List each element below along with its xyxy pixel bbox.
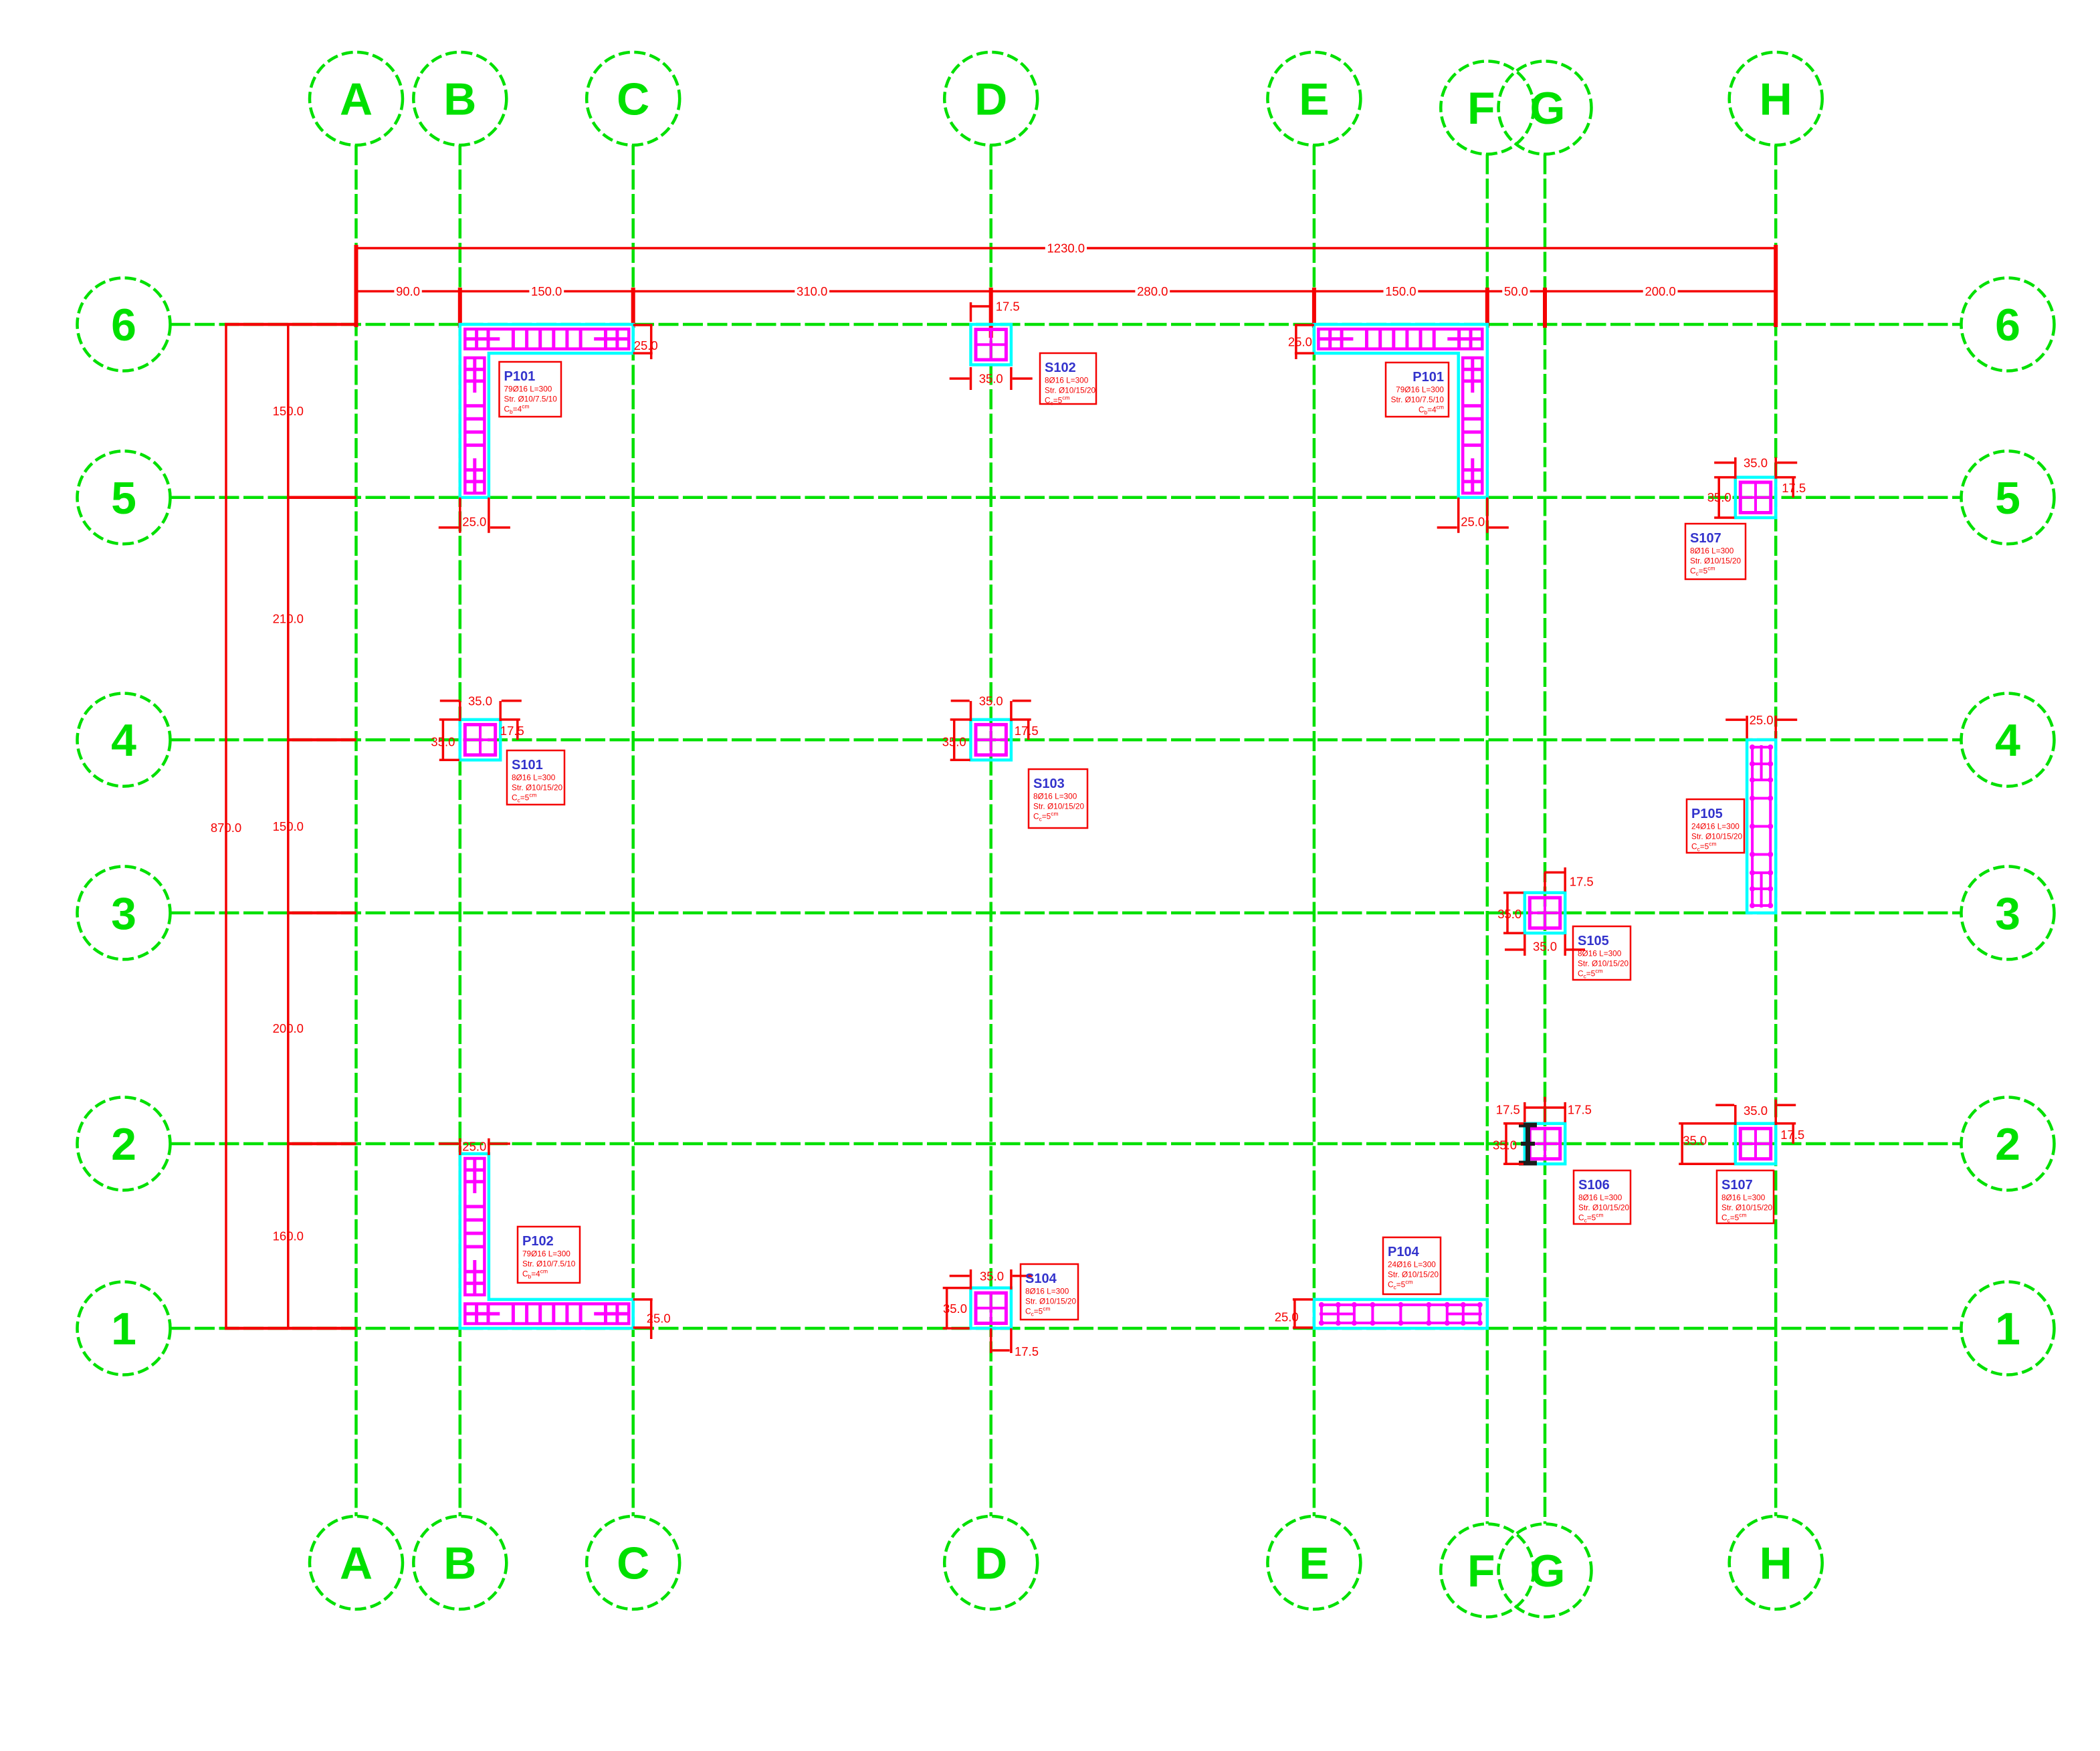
- svg-text:H: H: [1760, 74, 1792, 125]
- svg-text:150.0: 150.0: [273, 819, 304, 833]
- svg-text:S103: S103: [1033, 777, 1065, 791]
- svg-text:35.0: 35.0: [1744, 1104, 1768, 1118]
- svg-text:D: D: [974, 74, 1007, 125]
- svg-text:5: 5: [111, 473, 136, 524]
- svg-text:25.0: 25.0: [1275, 1310, 1299, 1324]
- svg-text:S107: S107: [1690, 531, 1721, 546]
- svg-text:79Ø16 L=300: 79Ø16 L=300: [522, 1249, 570, 1259]
- svg-text:870.0: 870.0: [211, 821, 241, 835]
- svg-text:200.0: 200.0: [273, 1021, 304, 1035]
- svg-text:8Ø16 L=300: 8Ø16 L=300: [512, 773, 556, 783]
- svg-text:17.5: 17.5: [996, 300, 1020, 314]
- svg-text:P102: P102: [522, 1234, 554, 1249]
- svg-text:Str. Ø10/7.5/10: Str. Ø10/7.5/10: [1391, 395, 1445, 405]
- svg-text:H: H: [1760, 1538, 1792, 1589]
- svg-text:1230.0: 1230.0: [1047, 241, 1085, 255]
- svg-text:17.5: 17.5: [500, 724, 524, 738]
- svg-text:35.0: 35.0: [1497, 907, 1521, 921]
- svg-text:S106: S106: [1578, 1178, 1610, 1193]
- svg-text:B: B: [443, 1538, 476, 1589]
- svg-text:210.0: 210.0: [273, 612, 304, 626]
- svg-text:25.0: 25.0: [634, 338, 658, 352]
- svg-text:Str. Ø10/15/20: Str. Ø10/15/20: [512, 783, 563, 793]
- svg-text:Str. Ø10/15/20: Str. Ø10/15/20: [1691, 832, 1743, 841]
- svg-text:150.0: 150.0: [273, 404, 304, 418]
- svg-text:17.5: 17.5: [1568, 1103, 1592, 1117]
- svg-text:17.5: 17.5: [1570, 875, 1594, 889]
- svg-text:150.0: 150.0: [531, 284, 562, 298]
- svg-text:79Ø16 L=300: 79Ø16 L=300: [1396, 385, 1444, 395]
- svg-text:35.0: 35.0: [1493, 1138, 1517, 1152]
- svg-text:Str. Ø10/15/20: Str. Ø10/15/20: [1388, 1270, 1439, 1279]
- svg-text:Str. Ø10/7.5/10: Str. Ø10/7.5/10: [504, 395, 558, 404]
- svg-text:35.0: 35.0: [1533, 940, 1557, 954]
- svg-text:A: A: [340, 74, 373, 125]
- svg-text:C: C: [617, 74, 649, 125]
- svg-text:280.0: 280.0: [1137, 284, 1168, 298]
- svg-text:24Ø16 L=300: 24Ø16 L=300: [1691, 822, 1740, 831]
- svg-text:F: F: [1467, 1546, 1495, 1596]
- svg-text:79Ø16 L=300: 79Ø16 L=300: [504, 385, 552, 394]
- svg-text:6: 6: [111, 300, 136, 350]
- svg-text:35.0: 35.0: [1683, 1134, 1707, 1148]
- svg-text:G: G: [1530, 83, 1566, 134]
- svg-text:8Ø16 L=300: 8Ø16 L=300: [1025, 1287, 1069, 1296]
- svg-text:Str. Ø10/15/20: Str. Ø10/15/20: [1721, 1203, 1773, 1213]
- svg-text:17.5: 17.5: [1782, 481, 1806, 495]
- svg-text:8Ø16 L=300: 8Ø16 L=300: [1578, 1193, 1622, 1203]
- svg-text:2: 2: [111, 1119, 136, 1170]
- svg-text:25.0: 25.0: [647, 1312, 671, 1326]
- svg-text:50.0: 50.0: [1504, 284, 1528, 298]
- svg-text:8Ø16 L=300: 8Ø16 L=300: [1045, 376, 1089, 385]
- svg-text:25.0: 25.0: [462, 1139, 486, 1153]
- svg-text:17.5: 17.5: [1780, 1128, 1804, 1142]
- svg-text:4: 4: [111, 715, 136, 766]
- svg-text:C: C: [617, 1538, 649, 1589]
- svg-text:E: E: [1299, 1538, 1329, 1589]
- svg-text:4: 4: [1995, 715, 2020, 766]
- svg-text:35.0: 35.0: [979, 372, 1003, 386]
- svg-text:1: 1: [111, 1304, 136, 1354]
- svg-text:160.0: 160.0: [273, 1229, 304, 1243]
- svg-text:A: A: [340, 1538, 373, 1589]
- svg-text:B: B: [443, 74, 476, 125]
- svg-text:35.0: 35.0: [431, 735, 455, 749]
- svg-text:35.0: 35.0: [980, 1269, 1004, 1283]
- svg-text:35.0: 35.0: [943, 1302, 967, 1316]
- svg-text:150.0: 150.0: [1385, 284, 1416, 298]
- svg-text:S107: S107: [1721, 1178, 1753, 1193]
- svg-text:3: 3: [1995, 888, 2020, 939]
- svg-text:Str. Ø10/15/20: Str. Ø10/15/20: [1045, 386, 1096, 395]
- svg-text:Str. Ø10/15/20: Str. Ø10/15/20: [1578, 1203, 1630, 1213]
- svg-text:8Ø16 L=300: 8Ø16 L=300: [1721, 1193, 1766, 1203]
- svg-text:35.0: 35.0: [1744, 456, 1768, 470]
- svg-text:P101: P101: [504, 369, 536, 384]
- svg-text:35.0: 35.0: [942, 735, 966, 749]
- svg-text:200.0: 200.0: [1645, 284, 1675, 298]
- svg-text:D: D: [974, 1538, 1007, 1589]
- svg-text:2: 2: [1995, 1119, 2020, 1170]
- svg-text:35.0: 35.0: [1707, 490, 1731, 504]
- svg-text:S101: S101: [512, 758, 543, 772]
- svg-text:6: 6: [1995, 300, 2020, 350]
- svg-text:P101: P101: [1412, 370, 1444, 385]
- svg-text:P105: P105: [1691, 807, 1723, 821]
- svg-text:Str. Ø10/15/20: Str. Ø10/15/20: [1578, 959, 1629, 968]
- svg-text:Str. Ø10/15/20: Str. Ø10/15/20: [1690, 556, 1742, 566]
- svg-text:24Ø16 L=300: 24Ø16 L=300: [1388, 1260, 1436, 1269]
- svg-text:25.0: 25.0: [462, 515, 486, 529]
- svg-text:17.5: 17.5: [1015, 1344, 1039, 1358]
- svg-text:S105: S105: [1578, 934, 1609, 948]
- svg-text:G: G: [1530, 1546, 1566, 1596]
- svg-text:E: E: [1299, 74, 1329, 125]
- svg-text:Str. Ø10/15/20: Str. Ø10/15/20: [1033, 802, 1085, 811]
- svg-text:3: 3: [111, 888, 136, 939]
- svg-text:1: 1: [1995, 1304, 2020, 1354]
- svg-text:P104: P104: [1388, 1245, 1420, 1259]
- svg-text:F: F: [1467, 83, 1495, 134]
- svg-text:90.0: 90.0: [396, 284, 420, 298]
- svg-text:25.0: 25.0: [1461, 515, 1485, 529]
- svg-text:25.0: 25.0: [1288, 335, 1312, 349]
- svg-text:S104: S104: [1025, 1271, 1057, 1286]
- svg-text:17.5: 17.5: [1015, 724, 1039, 738]
- svg-text:310.0: 310.0: [797, 284, 827, 298]
- svg-text:8Ø16 L=300: 8Ø16 L=300: [1578, 949, 1622, 958]
- svg-text:Str. Ø10/7.5/10: Str. Ø10/7.5/10: [522, 1259, 576, 1269]
- svg-text:8Ø16 L=300: 8Ø16 L=300: [1033, 792, 1077, 801]
- svg-text:17.5: 17.5: [1496, 1103, 1520, 1117]
- svg-text:Str. Ø10/15/20: Str. Ø10/15/20: [1025, 1297, 1077, 1306]
- svg-text:S102: S102: [1045, 360, 1076, 375]
- svg-text:35.0: 35.0: [468, 694, 492, 708]
- svg-text:25.0: 25.0: [1750, 713, 1774, 727]
- svg-text:5: 5: [1995, 473, 2020, 524]
- svg-text:8Ø16 L=300: 8Ø16 L=300: [1690, 546, 1734, 556]
- svg-text:35.0: 35.0: [979, 694, 1003, 708]
